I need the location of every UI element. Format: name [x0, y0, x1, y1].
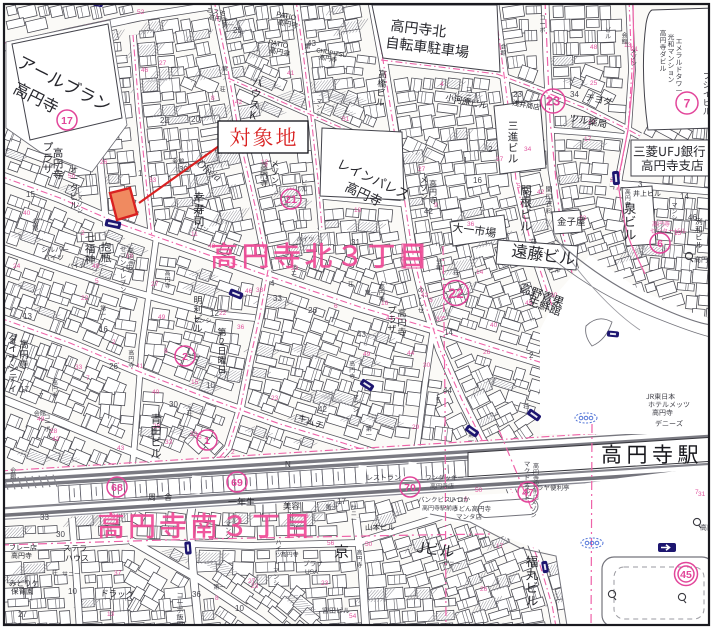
svg-text:17: 17: [337, 497, 346, 506]
svg-text:18: 18: [126, 253, 134, 260]
svg-text:22: 22: [160, 116, 169, 125]
svg-text:26: 26: [100, 159, 108, 166]
svg-text:14: 14: [476, 269, 484, 276]
svg-text:22: 22: [219, 310, 227, 317]
svg-text:23: 23: [321, 580, 329, 587]
svg-text:5: 5: [95, 278, 99, 285]
svg-text:30: 30: [423, 362, 431, 369]
svg-text:23: 23: [190, 431, 198, 438]
svg-text:37: 37: [496, 156, 504, 163]
svg-text:2: 2: [81, 230, 85, 237]
svg-text:1: 1: [138, 169, 143, 178]
svg-text:34: 34: [524, 146, 532, 153]
svg-text:2: 2: [488, 145, 493, 154]
svg-text:68: 68: [111, 482, 123, 494]
svg-text:10: 10: [206, 381, 215, 390]
svg-text:23: 23: [251, 583, 259, 590]
svg-text:17: 17: [61, 115, 73, 127]
svg-text:43: 43: [357, 330, 366, 339]
svg-text:54: 54: [349, 613, 357, 620]
svg-text:42: 42: [537, 189, 545, 196]
svg-text:33: 33: [273, 294, 282, 303]
svg-text:2: 2: [529, 351, 534, 360]
svg-text:18: 18: [354, 207, 362, 214]
svg-text:21: 21: [285, 194, 297, 206]
svg-text:4: 4: [270, 279, 275, 288]
svg-text:41: 41: [136, 363, 144, 370]
svg-text:28: 28: [50, 428, 58, 435]
svg-text:36: 36: [192, 590, 201, 599]
svg-text:42: 42: [421, 292, 429, 299]
svg-text:25: 25: [590, 80, 598, 87]
svg-text:17: 17: [584, 136, 592, 143]
svg-text:11: 11: [191, 231, 198, 238]
svg-text:10: 10: [235, 604, 244, 613]
svg-text:40: 40: [490, 322, 498, 329]
svg-text:40: 40: [152, 389, 160, 396]
svg-text:50: 50: [475, 487, 483, 494]
svg-text:38: 38: [256, 287, 264, 294]
svg-text:30: 30: [56, 530, 65, 539]
svg-text:26: 26: [109, 362, 118, 371]
svg-text:41: 41: [287, 70, 295, 77]
svg-text:40: 40: [23, 210, 31, 217]
svg-text:36: 36: [237, 324, 245, 331]
svg-text:33: 33: [40, 513, 49, 522]
svg-text:49: 49: [92, 263, 100, 270]
svg-text:44: 44: [407, 350, 415, 357]
svg-text:9: 9: [164, 348, 168, 355]
svg-text:48: 48: [590, 44, 598, 51]
svg-text:15: 15: [26, 190, 35, 199]
svg-text:7: 7: [684, 96, 691, 110]
svg-text:47: 47: [522, 487, 534, 499]
svg-text:15: 15: [674, 230, 682, 237]
svg-text:33: 33: [75, 364, 83, 371]
svg-text:6: 6: [657, 238, 663, 250]
svg-text:42: 42: [424, 207, 433, 216]
svg-text:29: 29: [412, 424, 420, 431]
svg-text:49: 49: [363, 351, 371, 358]
svg-text:N: N: [285, 460, 291, 469]
svg-text:USA: USA: [305, 569, 319, 576]
svg-text:30: 30: [169, 400, 178, 409]
svg-text:37: 37: [114, 570, 122, 577]
svg-text:14: 14: [680, 192, 689, 201]
svg-text:2: 2: [112, 339, 116, 346]
svg-text:26: 26: [483, 349, 491, 356]
svg-text:5: 5: [436, 396, 441, 405]
svg-text:45: 45: [680, 569, 692, 581]
svg-text:20: 20: [233, 26, 242, 35]
svg-text:31: 31: [698, 491, 706, 498]
svg-text:15: 15: [191, 379, 199, 386]
svg-text:46: 46: [245, 288, 253, 295]
svg-text:27: 27: [151, 281, 159, 288]
svg-text:49: 49: [158, 314, 166, 321]
svg-text:12: 12: [210, 309, 219, 318]
svg-text:42: 42: [235, 99, 243, 106]
svg-text:34: 34: [570, 90, 579, 99]
svg-text:23: 23: [546, 94, 560, 109]
svg-text:10: 10: [68, 587, 77, 596]
svg-text:22: 22: [81, 295, 89, 302]
svg-text:7: 7: [39, 392, 44, 401]
svg-text:17: 17: [496, 543, 504, 550]
svg-text:23: 23: [513, 90, 522, 99]
svg-text:13: 13: [23, 312, 32, 321]
svg-text:2: 2: [231, 449, 235, 456]
svg-text:14: 14: [444, 328, 453, 337]
svg-text:36: 36: [467, 221, 475, 228]
svg-text:17: 17: [20, 385, 29, 394]
svg-text:33: 33: [436, 316, 444, 323]
svg-text:42: 42: [52, 436, 60, 443]
svg-text:27: 27: [159, 60, 167, 67]
svg-text:46: 46: [141, 67, 149, 74]
svg-text:16: 16: [99, 325, 108, 334]
svg-text:22: 22: [448, 285, 464, 301]
svg-text:8: 8: [211, 95, 215, 102]
svg-text:27: 27: [18, 610, 27, 619]
svg-text:2: 2: [182, 351, 188, 363]
svg-text:1: 1: [204, 435, 210, 447]
svg-text:69: 69: [231, 477, 243, 489]
svg-text:33: 33: [149, 177, 157, 184]
svg-text:49: 49: [37, 416, 45, 423]
svg-text:7: 7: [695, 489, 699, 496]
svg-text:27: 27: [418, 166, 426, 173]
svg-text:43: 43: [117, 445, 125, 452]
svg-text:1: 1: [463, 156, 468, 165]
svg-text:52: 52: [137, 9, 145, 16]
svg-text:7: 7: [86, 375, 90, 382]
svg-text:33: 33: [165, 439, 173, 446]
svg-text:51: 51: [342, 116, 350, 123]
svg-text:20: 20: [191, 115, 200, 124]
svg-text:5: 5: [517, 183, 521, 190]
svg-text:13: 13: [107, 611, 115, 618]
svg-text:26: 26: [308, 306, 317, 315]
svg-text:8: 8: [215, 595, 219, 602]
svg-text:6: 6: [334, 303, 338, 310]
svg-text:24: 24: [13, 263, 21, 270]
svg-text:23: 23: [271, 395, 279, 402]
svg-text:44: 44: [443, 386, 452, 395]
svg-text:50: 50: [68, 173, 76, 180]
svg-text:16: 16: [473, 176, 482, 185]
svg-text:26: 26: [480, 586, 488, 593]
svg-text:56: 56: [327, 540, 335, 547]
svg-text:42: 42: [318, 405, 327, 414]
svg-text:3: 3: [638, 180, 643, 189]
svg-text:50: 50: [365, 541, 373, 548]
svg-text:8: 8: [429, 297, 433, 304]
svg-text:70: 70: [404, 482, 416, 494]
svg-text:4: 4: [440, 81, 444, 88]
